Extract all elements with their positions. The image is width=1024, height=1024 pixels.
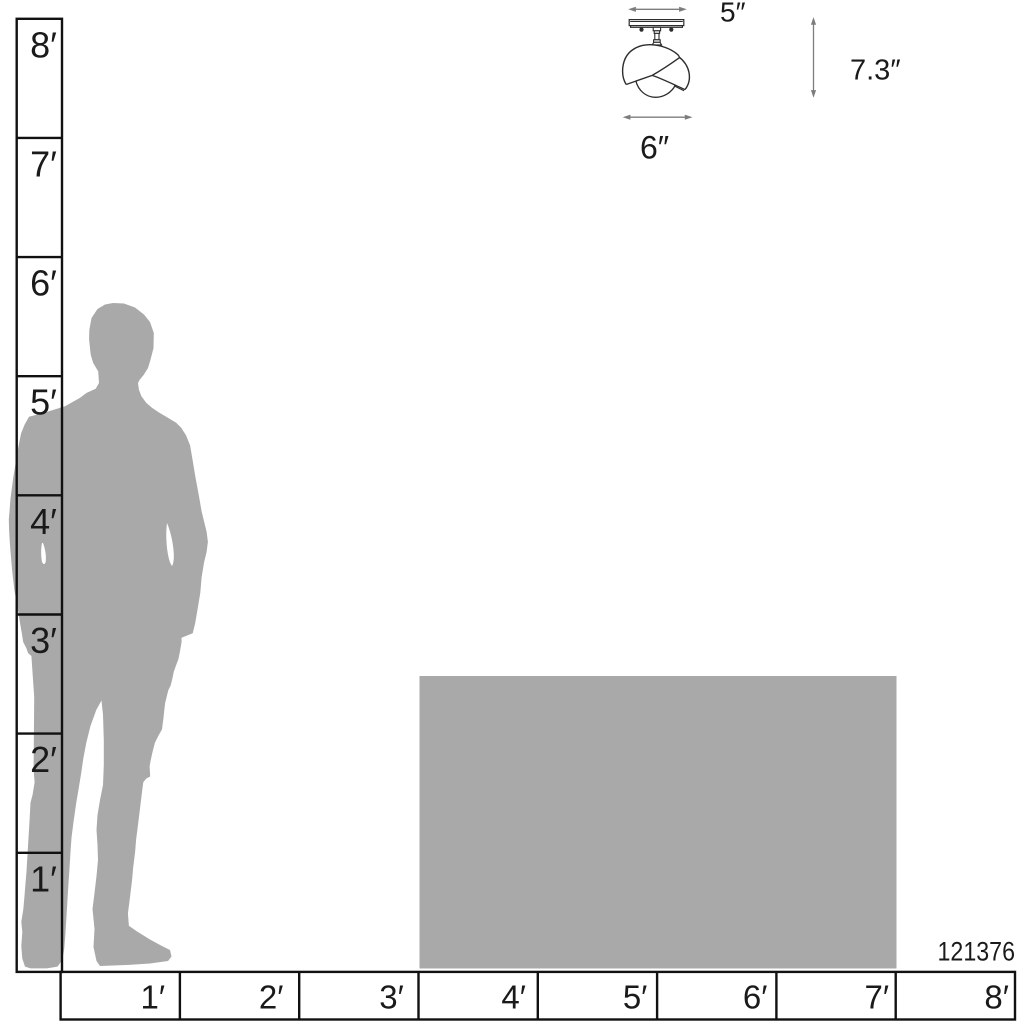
svg-text:2′: 2′ xyxy=(259,979,284,1016)
svg-text:5′: 5′ xyxy=(623,979,648,1016)
svg-text:5″: 5″ xyxy=(720,0,746,28)
svg-text:1′: 1′ xyxy=(30,858,57,899)
svg-text:6″: 6″ xyxy=(640,130,669,166)
svg-text:4′: 4′ xyxy=(501,979,526,1016)
svg-text:7′: 7′ xyxy=(30,143,57,184)
svg-text:6′: 6′ xyxy=(743,979,768,1016)
svg-text:3′: 3′ xyxy=(30,620,57,661)
svg-text:4′: 4′ xyxy=(30,501,57,542)
svg-text:7.3″: 7.3″ xyxy=(850,54,901,86)
svg-text:7′: 7′ xyxy=(865,979,890,1016)
svg-text:6′: 6′ xyxy=(30,263,57,304)
svg-text:1′: 1′ xyxy=(141,979,166,1016)
svg-text:2′: 2′ xyxy=(30,739,57,780)
svg-text:3′: 3′ xyxy=(379,979,404,1016)
svg-text:8′: 8′ xyxy=(30,24,57,65)
svg-text:121376: 121376 xyxy=(938,937,1016,967)
svg-text:5′: 5′ xyxy=(30,382,57,423)
svg-text:8′: 8′ xyxy=(984,979,1009,1016)
